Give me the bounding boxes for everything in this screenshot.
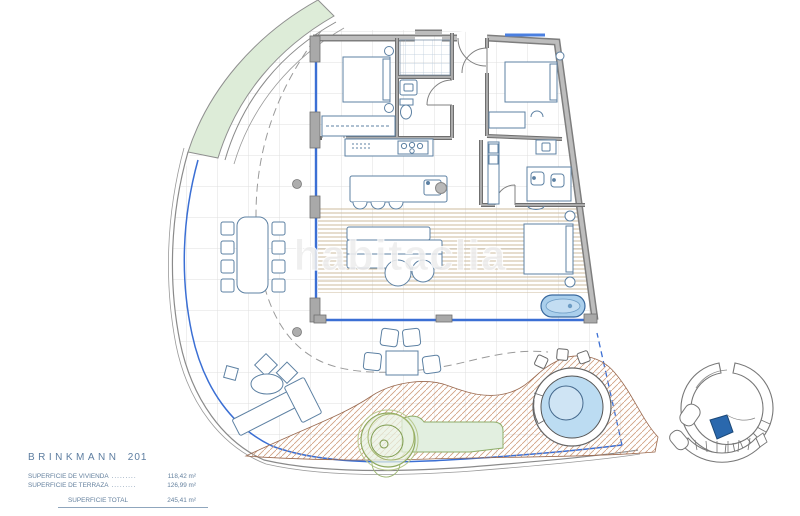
surface-row-terraza: SUPERFICIE DE TERRAZA ......... 126,99 m…: [28, 481, 196, 490]
toilet-bowl: [401, 105, 412, 119]
outdoor-chair: [380, 328, 399, 347]
row-label: SUPERFICIE DE VIVIENDA: [28, 472, 109, 481]
ottoman: [251, 374, 283, 394]
toilet-cistern: [400, 99, 413, 105]
floor-plan-drawing: habitaclia: [0, 0, 800, 516]
bed-1-pillows: [383, 59, 390, 100]
location-keyplan: [667, 363, 773, 462]
highlighted-unit: [710, 415, 733, 439]
outdoor-table: [386, 351, 418, 375]
nightstand-lamp: [556, 52, 564, 60]
nightstand-lamp: [385, 104, 394, 113]
bathtub: [541, 295, 585, 317]
surface-total-row: SUPERFICIE TOTAL 245,41 m²: [28, 497, 196, 504]
bench: [489, 112, 525, 128]
project-name: BRINKMANN: [28, 452, 120, 463]
total-underline: [58, 507, 208, 508]
row-leader: .........: [112, 472, 137, 481]
bed-2-pillows: [550, 64, 557, 100]
master-bed-pillows: [566, 226, 573, 272]
shower: [400, 40, 450, 75]
pouf-square: [224, 366, 239, 381]
outdoor-chair: [363, 352, 382, 371]
total-value: 245,41 m²: [167, 497, 196, 504]
island-hob: [436, 183, 447, 194]
surface-row-vivienda: SUPERFICIE DE VIVIENDA ......... 118,42 …: [28, 472, 196, 481]
nightstand-lamp: [385, 47, 394, 56]
row-value: 118,42 m²: [168, 472, 196, 481]
bar-stools: [353, 202, 403, 209]
floorplan-page: habitaclia BRINKMANN 201 SUPERFICIE DE V…: [0, 0, 800, 516]
row-label: SUPERFICIE DE TERRAZA: [28, 481, 109, 490]
nightstand-lamp: [565, 277, 575, 287]
row-leader: .........: [112, 481, 137, 490]
watermark: habitaclia: [294, 231, 507, 280]
unit-title: BRINKMANN 201: [28, 452, 228, 463]
outdoor-chair: [402, 328, 421, 347]
dining-table: [237, 217, 268, 293]
outdoor-chair: [422, 355, 441, 374]
row-value: 126,99 m²: [167, 481, 196, 490]
bed-2: [505, 62, 557, 102]
surface-info-block: BRINKMANN 201 SUPERFICIE DE VIVIENDA ...…: [28, 452, 228, 508]
total-label: SUPERFICIE TOTAL: [68, 497, 128, 504]
unit-number: 201: [128, 452, 148, 463]
nightstand-lamp: [565, 211, 575, 221]
hob: [398, 141, 428, 154]
